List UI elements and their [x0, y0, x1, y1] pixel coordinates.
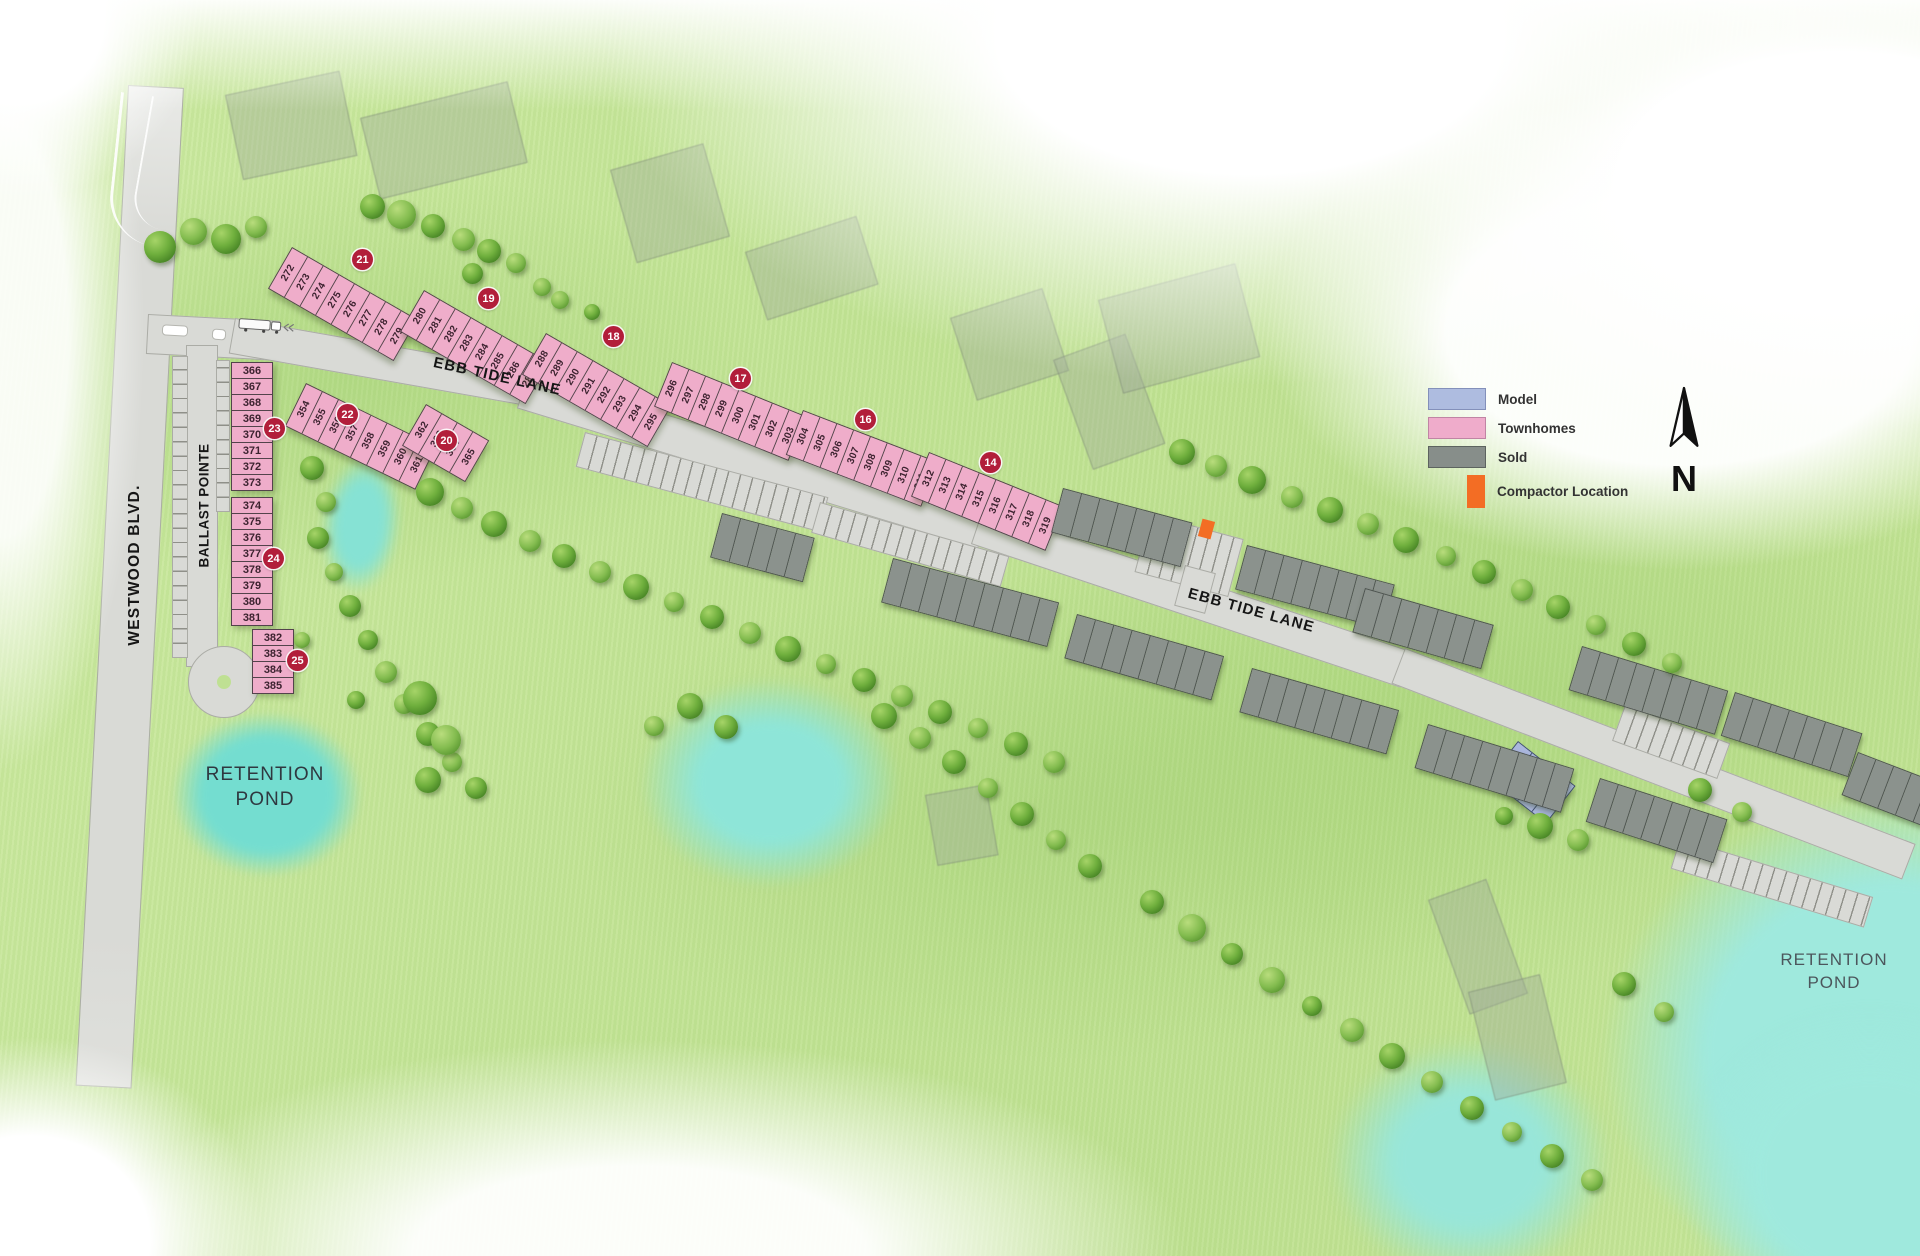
tree — [452, 228, 475, 251]
lot-number: 301 — [747, 411, 764, 431]
lot-368[interactable]: 368 — [232, 395, 272, 411]
lot-number: 378 — [243, 564, 261, 576]
tree — [1436, 546, 1456, 566]
compactor-swatch — [1467, 475, 1485, 508]
lot-372[interactable]: 372 — [232, 459, 272, 475]
retention-pond-right-line1: RETENTION — [1748, 948, 1920, 971]
lot-number: 369 — [243, 413, 261, 425]
tree — [442, 752, 462, 772]
tree — [339, 595, 361, 617]
north-arrow-icon — [1665, 386, 1703, 452]
lot-number: 380 — [243, 596, 261, 608]
lot-number: 308 — [862, 452, 878, 472]
tree — [1004, 732, 1028, 756]
lot-number: 384 — [264, 664, 282, 676]
model-swatch — [1428, 388, 1486, 410]
tree — [1046, 830, 1066, 850]
legend-label: Model — [1498, 392, 1537, 407]
lot-number: 313 — [937, 474, 954, 494]
lot-number: 310 — [896, 464, 912, 484]
retention-pond-left-line2: POND — [185, 787, 345, 812]
lot-number: 295 — [642, 411, 660, 431]
townhomes-swatch — [1428, 417, 1486, 439]
road-island-marking — [162, 324, 189, 336]
tree — [589, 561, 611, 583]
ballast-cul-de-sac — [188, 646, 260, 718]
lot-number: 317 — [1004, 501, 1021, 521]
building-badge-16: 16 — [855, 409, 876, 430]
tree — [451, 497, 473, 519]
lot-number: 305 — [812, 432, 828, 452]
legend-item-model: Model — [1428, 388, 1628, 410]
tree — [1238, 466, 1266, 494]
lot-number: 368 — [243, 397, 261, 409]
lot-number: 306 — [829, 439, 845, 459]
tree — [1078, 854, 1102, 878]
lot-number: 373 — [243, 477, 261, 489]
lot-number: 318 — [1021, 508, 1038, 528]
lot-number: 366 — [243, 365, 261, 377]
tree — [375, 661, 397, 683]
tree — [519, 530, 541, 552]
tree — [1472, 560, 1496, 584]
retention-pond-right-label: RETENTION POND — [1748, 948, 1920, 994]
tree — [1221, 943, 1243, 965]
lot-number: 377 — [243, 548, 261, 560]
tree — [942, 750, 966, 774]
tree — [1393, 527, 1419, 553]
building-badge-24: 24 — [263, 548, 284, 569]
tree — [714, 715, 738, 739]
tree — [552, 544, 576, 568]
tree — [909, 727, 931, 749]
tree — [551, 291, 569, 309]
tree — [700, 605, 724, 629]
lot-number: 375 — [243, 516, 261, 528]
north-label: N — [1662, 461, 1706, 497]
tree — [358, 630, 378, 650]
lot-number: 299 — [714, 398, 731, 418]
tree — [1612, 972, 1636, 996]
tree — [387, 200, 416, 229]
building-badge-18: 18 — [603, 326, 624, 347]
lot-375[interactable]: 375 — [232, 514, 272, 530]
building-badge-14: 14 — [980, 452, 1001, 473]
tree — [300, 456, 324, 480]
sold-swatch — [1428, 446, 1486, 468]
tree — [891, 685, 913, 707]
tree — [481, 511, 507, 537]
building-badge-22: 22 — [337, 404, 358, 425]
tree — [871, 703, 897, 729]
lot-381[interactable]: 381 — [232, 610, 272, 625]
tree — [928, 700, 952, 724]
street-label-westwood-blvd: WESTWOOD BLVD. — [126, 470, 144, 660]
lot-number: 365 — [460, 446, 478, 466]
tree — [477, 239, 501, 263]
tree — [506, 253, 526, 273]
tree — [1178, 914, 1206, 942]
lot-367[interactable]: 367 — [232, 379, 272, 395]
lot-382[interactable]: 382 — [253, 630, 293, 646]
tree — [1688, 778, 1712, 802]
legend-label: Sold — [1498, 450, 1527, 465]
tree — [421, 214, 445, 238]
tree — [1340, 1018, 1364, 1042]
parking-ballast-east — [216, 360, 230, 512]
lot-380[interactable]: 380 — [232, 594, 272, 610]
lot-376[interactable]: 376 — [232, 530, 272, 546]
lot-number: 383 — [264, 648, 282, 660]
parking-ballast-west — [172, 356, 188, 658]
legend-item-compactor: Compactor Location — [1428, 475, 1628, 508]
lot-number: 300 — [730, 405, 747, 425]
tree — [1567, 829, 1589, 851]
lot-number: 304 — [795, 426, 811, 446]
tree — [1010, 802, 1034, 826]
tree — [360, 194, 385, 219]
tree — [325, 563, 343, 581]
lot-number: 382 — [264, 632, 282, 644]
tree — [664, 592, 684, 612]
lot-385[interactable]: 385 — [253, 678, 293, 693]
lot-374[interactable]: 374 — [232, 498, 272, 514]
tree — [1460, 1096, 1484, 1120]
lot-number: 371 — [243, 445, 261, 457]
tree — [1586, 615, 1606, 635]
tree — [144, 231, 176, 263]
tree — [1205, 455, 1227, 477]
tree — [180, 218, 207, 245]
retention-pond-right-line2: POND — [1748, 971, 1920, 994]
tree — [1732, 802, 1752, 822]
road-island-marking — [212, 328, 227, 340]
legend-label: Townhomes — [1498, 421, 1576, 436]
tree — [584, 304, 600, 320]
building-badge-21: 21 — [352, 249, 373, 270]
lot-number: 296 — [663, 378, 680, 398]
lot-number: 376 — [243, 532, 261, 544]
building-badge-23: 23 — [264, 418, 285, 439]
tree — [1502, 1122, 1522, 1142]
tree — [431, 725, 461, 755]
lot-371[interactable]: 371 — [232, 443, 272, 459]
tree — [1495, 807, 1513, 825]
lot-number: 316 — [987, 495, 1004, 515]
lot-number: 374 — [243, 500, 261, 512]
tree — [968, 718, 988, 738]
building-badge-19: 19 — [478, 288, 499, 309]
tree — [1581, 1169, 1603, 1191]
building-badge-25: 25 — [287, 650, 308, 671]
tree — [852, 668, 876, 692]
lot-number: 385 — [264, 680, 282, 692]
tree — [1421, 1071, 1443, 1093]
tree — [1317, 497, 1343, 523]
tree — [1662, 653, 1682, 673]
tree — [1357, 513, 1379, 535]
lot-number: 379 — [243, 580, 261, 592]
legend: ModelTownhomesSoldCompactor Location — [1428, 388, 1628, 515]
lot-379[interactable]: 379 — [232, 578, 272, 594]
tree — [533, 278, 551, 296]
tree — [623, 574, 649, 600]
lot-number: 309 — [879, 458, 895, 478]
street-label-ballast-pointe: BALLAST POINTE — [197, 436, 212, 576]
lot-number: 370 — [243, 429, 261, 441]
building-badge-20: 20 — [436, 430, 457, 451]
north-indicator: N — [1662, 386, 1706, 497]
tree — [245, 216, 267, 238]
tree — [1654, 1002, 1674, 1022]
tree — [1511, 579, 1533, 601]
tree — [1259, 967, 1285, 993]
retention-pond-left-line1: RETENTION — [185, 762, 345, 787]
lot-number: 312 — [920, 468, 937, 488]
legend-item-townhomes: Townhomes — [1428, 417, 1628, 439]
tree — [1043, 751, 1065, 773]
tree — [415, 767, 441, 793]
tree — [294, 632, 310, 648]
legend-label: Compactor Location — [1497, 484, 1628, 499]
lot-number: 298 — [697, 391, 714, 411]
tree — [816, 654, 836, 674]
lot-number: 297 — [680, 384, 697, 404]
tree — [1302, 996, 1322, 1016]
tree — [1546, 595, 1570, 619]
tree — [1140, 890, 1164, 914]
tree — [739, 622, 761, 644]
building-badge-17: 17 — [730, 368, 751, 389]
tree — [1527, 813, 1553, 839]
lot-number: 315 — [971, 488, 988, 508]
tree — [211, 224, 241, 254]
lot-366[interactable]: 366 — [232, 363, 272, 379]
tree — [1281, 486, 1303, 508]
retention-pond-left-label: RETENTION POND — [185, 762, 345, 812]
tree — [347, 691, 365, 709]
tree — [403, 681, 437, 715]
tree — [316, 492, 336, 512]
lot-number: 367 — [243, 381, 261, 393]
tree — [1622, 632, 1646, 656]
lot-373[interactable]: 373 — [232, 475, 272, 490]
tree — [644, 716, 664, 736]
lot-number: 372 — [243, 461, 261, 473]
tree — [307, 527, 329, 549]
lot-number: 381 — [243, 612, 261, 624]
tree — [462, 263, 483, 284]
site-plan-map: 272273274275276277278279 280281282283284… — [0, 0, 1920, 1256]
tree — [978, 778, 998, 798]
tree — [677, 693, 703, 719]
lot-number: 314 — [954, 481, 971, 501]
tree — [1169, 439, 1195, 465]
tree — [775, 636, 801, 662]
lot-number: 307 — [845, 445, 861, 465]
tree — [1379, 1043, 1405, 1069]
lot-number: 302 — [764, 418, 781, 438]
tree — [1540, 1144, 1564, 1168]
tree — [416, 478, 444, 506]
legend-item-sold: Sold — [1428, 446, 1628, 468]
tree — [465, 777, 487, 799]
